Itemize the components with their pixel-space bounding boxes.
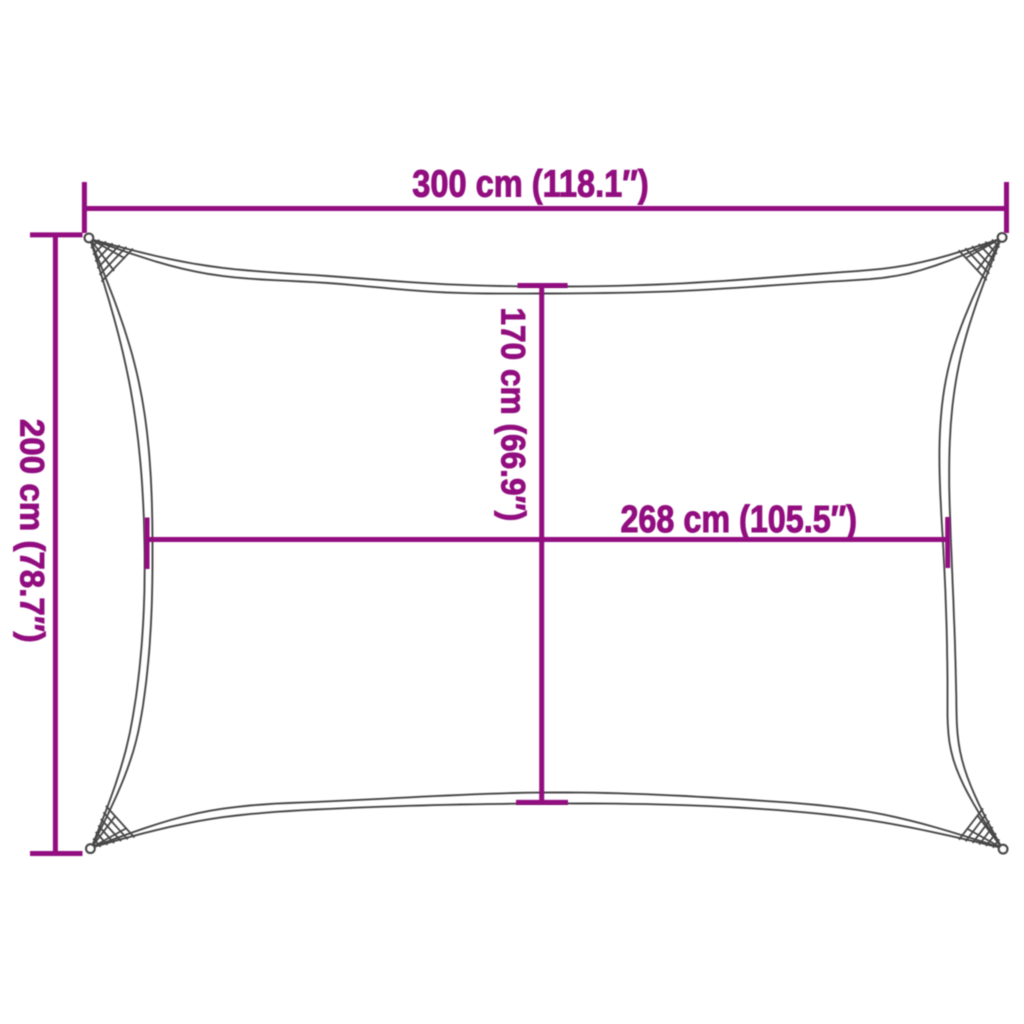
svg-text:170 cm (66.9″): 170 cm (66.9″)	[494, 307, 532, 521]
svg-text:268 cm (105.5″): 268 cm (105.5″)	[620, 499, 857, 541]
svg-text:300 cm (118.1″): 300 cm (118.1″)	[412, 163, 648, 205]
svg-text:200 cm (78.7″): 200 cm (78.7″)	[12, 419, 49, 643]
